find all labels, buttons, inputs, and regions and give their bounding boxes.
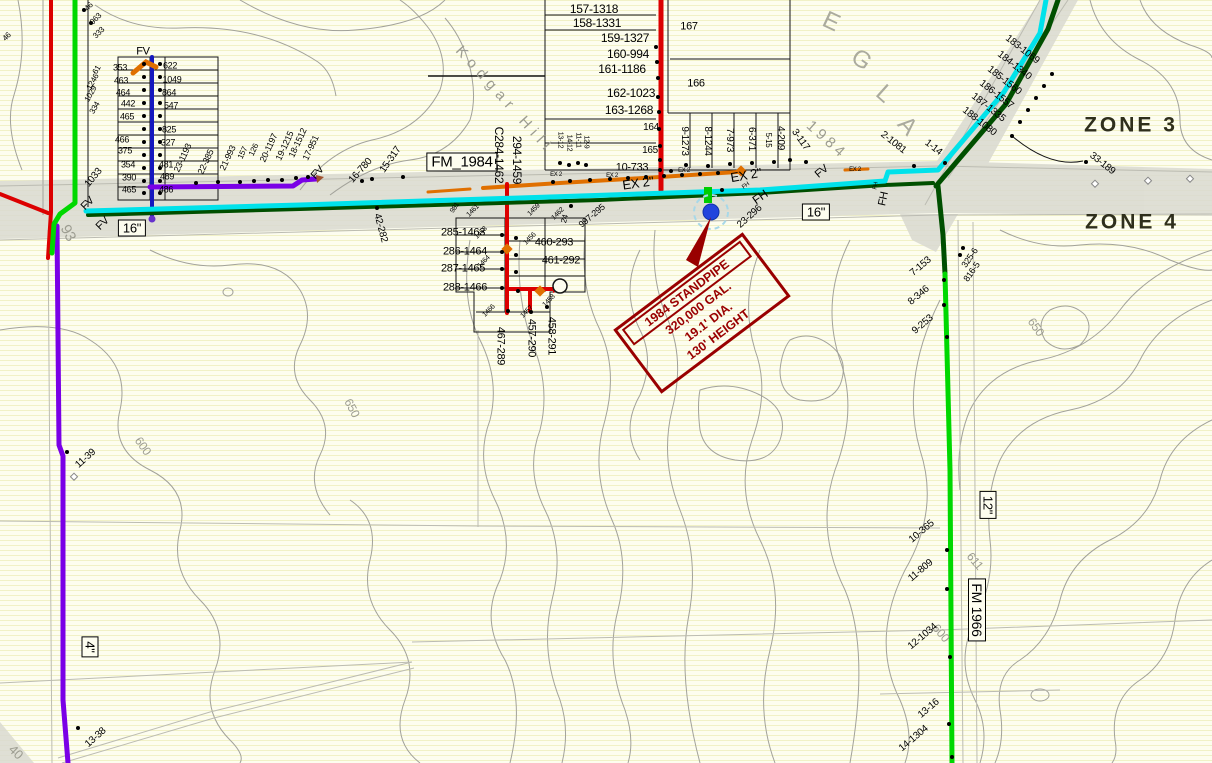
meter-dot <box>216 180 220 184</box>
meter-dot <box>947 722 951 726</box>
meter-dot <box>280 178 284 182</box>
meter-dot <box>306 175 310 179</box>
meter-dot <box>958 253 962 257</box>
meter-dot <box>950 755 954 759</box>
map-label: 42-282 <box>371 213 388 244</box>
map-label: 23-296 <box>736 203 764 230</box>
meter-dot <box>142 191 146 195</box>
map-label: 161-1186 <box>598 63 645 75</box>
map-label: 294-1459 <box>511 136 523 184</box>
map-label: 40 <box>6 742 25 761</box>
map-label: 997-295 <box>577 203 606 230</box>
map-label: 825 <box>162 126 176 135</box>
map-label: FM_1984 <box>426 153 497 172</box>
map-label: 9-253 <box>911 313 936 336</box>
map-label: 4-209 <box>775 126 785 150</box>
meter-dot <box>567 163 571 167</box>
map-label: 390 <box>122 174 136 183</box>
map-label: C284-1462 <box>493 127 505 184</box>
meter-dot <box>76 726 80 730</box>
meter-dot <box>360 179 364 183</box>
meter-dot <box>142 114 146 118</box>
meter-dot <box>1026 108 1030 112</box>
meter-dot <box>65 450 69 454</box>
meter-dot <box>912 164 916 168</box>
meter-dot <box>788 158 792 162</box>
map-label: 1-14 <box>923 138 944 157</box>
meter-dot <box>514 236 518 240</box>
map-label: EX 2 <box>550 172 562 178</box>
map-label: 327 <box>161 139 175 148</box>
map-label: 11-809 <box>907 558 935 584</box>
meter-dot <box>658 144 662 148</box>
meter-dot <box>545 305 549 309</box>
map-label: 4" <box>82 636 99 657</box>
map-label: 23-1193 <box>173 142 194 173</box>
map-label: EX 2 <box>849 167 861 173</box>
map-label: 5-15 <box>764 133 772 148</box>
map-label: FV <box>813 163 830 180</box>
map-label: 864 <box>162 89 176 98</box>
map-label: 1461 <box>465 203 480 218</box>
meter-dot <box>945 548 949 552</box>
meter-dot <box>158 153 162 157</box>
meter-dot <box>500 286 504 290</box>
map-label: 10-733 <box>616 163 648 174</box>
map-label: 11-39 <box>74 447 98 470</box>
meter-dot <box>370 177 374 181</box>
map-label: 6-371 <box>746 127 756 151</box>
meter-dot <box>626 176 630 180</box>
meter-dot <box>804 160 808 164</box>
meter-dot <box>158 140 162 144</box>
meter-dot <box>529 310 533 314</box>
map-label: 1984 <box>804 118 851 162</box>
map-label: 16" <box>802 204 830 221</box>
meter-dot <box>551 180 555 184</box>
map-label: 464 <box>116 89 130 98</box>
map-label: 16" <box>118 220 146 237</box>
map-label: L <box>871 81 897 108</box>
map-label: FV <box>79 195 96 212</box>
map-label: 22-385 <box>196 148 215 176</box>
meter-dot <box>945 587 949 591</box>
map-label: 354 <box>121 161 135 170</box>
map-label: 1049 <box>163 76 182 85</box>
meter-dot <box>1010 134 1014 138</box>
meter-dot <box>644 175 648 179</box>
meter-dot <box>657 127 661 131</box>
meter-dot <box>142 179 146 183</box>
meter-dot <box>728 162 732 166</box>
meter-dot <box>375 206 379 210</box>
map-label: A <box>893 112 921 140</box>
meter-dot <box>158 114 162 118</box>
meter-dot <box>158 62 162 66</box>
map-label: 93 <box>58 222 79 243</box>
map-label: 165 <box>642 146 658 156</box>
map-label: 489 <box>160 173 174 182</box>
map-label: 46 <box>1 31 13 43</box>
map-label: 547 <box>164 102 178 111</box>
map-label: 463 <box>114 77 128 86</box>
meter-dot <box>1034 96 1038 100</box>
zone-4-label: ZONE 4 <box>1085 212 1179 233</box>
meter-dot <box>684 163 688 167</box>
meter-dot <box>142 88 146 92</box>
map-canvas[interactable]: FM_198416"16"12"FM 19664"Kodgar Hill1984… <box>0 0 1212 763</box>
meter-dot <box>1050 72 1054 76</box>
map-label: 11-11 <box>575 132 582 147</box>
map-label: 467-289 <box>495 327 506 365</box>
meter-dot <box>1042 84 1046 88</box>
map-label: 8-346 <box>907 284 932 307</box>
meter-dot <box>658 158 662 162</box>
meter-dot <box>516 289 520 293</box>
map-label: 33-189 <box>1087 151 1116 177</box>
map-label: 465 <box>122 186 136 195</box>
map-label: 14-12 <box>566 135 573 151</box>
map-label: 157-1318 <box>570 3 618 15</box>
meter-dot <box>514 270 518 274</box>
meter-dot <box>608 177 612 181</box>
map-label: 13-12 <box>557 132 564 148</box>
map-label: 158-1331 <box>573 17 621 29</box>
map-label: 1033 <box>83 167 104 190</box>
meter-dot <box>500 267 504 271</box>
map-label: 622 <box>163 62 177 71</box>
meter-dot <box>506 309 510 313</box>
map-label: 981 <box>449 202 461 215</box>
map-label: 1458 <box>541 293 556 308</box>
meter-dot <box>1018 120 1022 124</box>
map-label: 457-290 <box>526 319 537 357</box>
meter-dot <box>158 191 162 195</box>
meter-dot <box>82 8 86 12</box>
meter-dot <box>89 21 93 25</box>
map-label: 7-153 <box>909 255 934 278</box>
map-label: 611 <box>965 550 986 572</box>
meter-dot <box>655 60 659 64</box>
meter-dot <box>698 172 702 176</box>
meter-dot <box>142 101 146 105</box>
meter-dot <box>158 101 162 105</box>
meter-dot <box>142 62 146 66</box>
map-label: 288-1466 <box>443 283 487 294</box>
map-label: FV <box>136 47 149 58</box>
map-label: FV <box>94 215 111 232</box>
map-label: 15-317 <box>378 145 403 175</box>
labels-layer: FM_198416"16"12"FM 19664"Kodgar Hill1984… <box>0 0 1212 763</box>
meter-dot <box>750 161 754 165</box>
map-label: 167 <box>680 22 697 33</box>
meter-dot <box>142 127 146 131</box>
map-label: 333 <box>92 26 106 40</box>
meter-dot <box>943 161 947 165</box>
meter-dot <box>252 179 256 183</box>
map-label: 24 <box>560 214 570 224</box>
map-label: 600 <box>133 435 154 458</box>
map-label: 163-1268 <box>605 104 653 116</box>
map-label: 286-1464 <box>443 247 487 258</box>
meter-dot <box>142 166 146 170</box>
meter-dot <box>654 45 658 49</box>
map-label: 353 <box>113 64 127 73</box>
map-label: 461-292 <box>542 256 580 267</box>
meter-dot <box>942 303 946 307</box>
map-label: 160-994 <box>607 48 649 60</box>
meter-dot <box>158 127 162 131</box>
map-label: G <box>847 45 876 75</box>
meter-dot <box>584 163 588 167</box>
meter-dot <box>500 233 504 237</box>
map-label: 458-291 <box>546 317 557 355</box>
map-label: 10-365 <box>908 519 937 546</box>
map-label: 166 <box>687 79 704 90</box>
map-label: 14-1304 <box>898 724 931 754</box>
meter-dot <box>158 179 162 183</box>
meter-dot <box>656 76 660 80</box>
meter-dot <box>158 75 162 79</box>
map-label: E <box>819 8 843 36</box>
zone-3-label: ZONE 3 <box>1084 115 1178 136</box>
meter-dot <box>158 166 162 170</box>
map-label: 12-9 <box>583 136 590 149</box>
map-label: 466 <box>115 136 129 145</box>
meter-dot <box>194 181 198 185</box>
meter-dot <box>238 180 242 184</box>
map-label: 162-1023 <box>607 87 655 99</box>
meter-dot <box>142 75 146 79</box>
meter-dot <box>568 179 572 183</box>
map-label: 442 <box>121 100 135 109</box>
meter-dot <box>945 335 949 339</box>
meter-dot <box>588 178 592 182</box>
meter-dot <box>656 95 660 99</box>
meter-dot <box>569 204 573 208</box>
map-label: 9-1273 <box>679 126 689 155</box>
meter-dot <box>706 164 710 168</box>
meter-dot <box>942 278 946 282</box>
meter-dot <box>266 178 270 182</box>
map-label: FH <box>877 191 891 207</box>
map-label: 8-1244 <box>702 126 712 155</box>
meter-dot <box>658 168 662 172</box>
meter-dot <box>669 169 673 173</box>
meter-dot <box>294 176 298 180</box>
meter-dot <box>500 250 504 254</box>
meter-dot <box>1084 160 1088 164</box>
map-label: 465 <box>120 113 134 122</box>
map-label: 1459 <box>526 202 541 217</box>
map-label: 650 <box>1026 316 1047 339</box>
map-label: 7-973 <box>724 128 734 152</box>
map-label: FH <box>872 182 879 190</box>
meter-dot <box>961 246 965 250</box>
meter-dot <box>558 161 562 165</box>
meter-dot <box>142 140 146 144</box>
map-label: 13-16 <box>917 697 942 720</box>
map-label: FH <box>750 188 770 207</box>
map-label: FV <box>309 164 326 181</box>
meter-dot <box>401 175 405 179</box>
meter-dot <box>716 171 720 175</box>
map-label: 12" <box>980 491 997 519</box>
map-label: 375 <box>118 147 132 156</box>
meter-dot <box>158 88 162 92</box>
map-label: 159-1327 <box>601 32 649 44</box>
meter-dot <box>948 655 952 659</box>
map-label: FM 1966 <box>968 578 986 641</box>
map-label: 21-993 <box>218 144 237 172</box>
map-label: 650 <box>342 397 362 420</box>
meter-dot <box>772 160 776 164</box>
meter-dot <box>576 161 580 165</box>
meter-dot <box>680 173 684 177</box>
meter-dot <box>657 110 661 114</box>
map-label: 13-38 <box>84 726 109 750</box>
map-label: 460-293 <box>535 238 573 249</box>
meter-dot <box>142 153 146 157</box>
map-label: 1466 <box>481 303 496 318</box>
meter-dot <box>514 253 518 257</box>
meter-dot <box>662 174 666 178</box>
meter-dot <box>720 188 724 192</box>
